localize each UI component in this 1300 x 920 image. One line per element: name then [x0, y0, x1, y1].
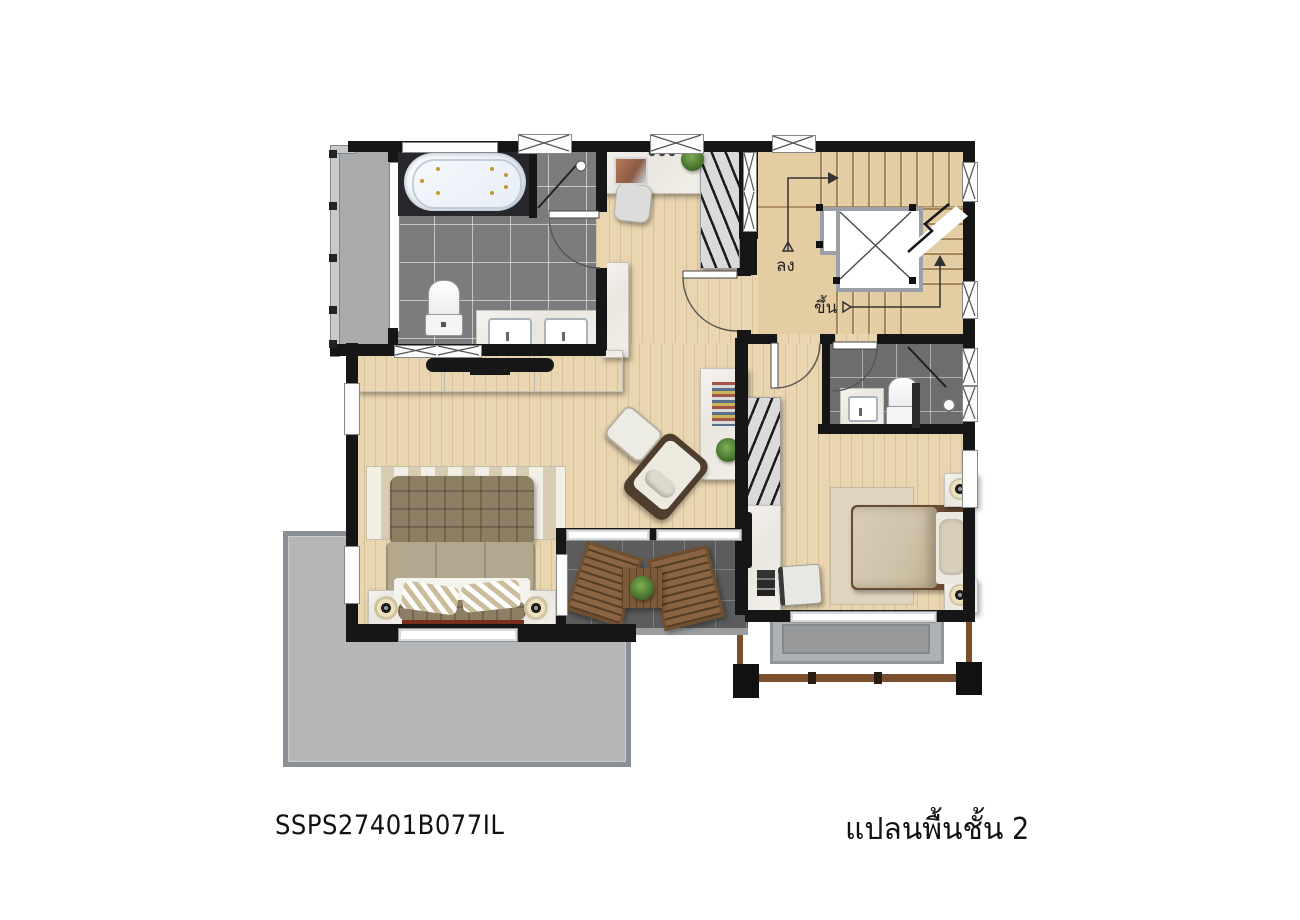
- plan-title: แปลนพื้นชั้น 2: [845, 806, 1029, 853]
- bed2-pillow: [939, 519, 965, 575]
- sliding-door: [790, 611, 937, 623]
- pergola-post-left: [733, 664, 759, 698]
- master-balcony-left: [330, 145, 398, 355]
- balcony-railing: [330, 145, 340, 357]
- wall-bath2-divider: [912, 383, 920, 428]
- stair-void-patch: [841, 212, 853, 242]
- window-x: [772, 135, 816, 153]
- wall-balcony-stub-bottom: [388, 328, 398, 346]
- window-x: [962, 281, 978, 319]
- wall-bath2-left: [822, 343, 830, 432]
- faucet: [859, 408, 862, 416]
- faucet: [506, 332, 509, 341]
- sliding-door: [566, 529, 650, 541]
- door-post: [737, 268, 751, 276]
- doorway-threshold: [596, 212, 607, 268]
- window-x: [962, 386, 978, 422]
- wall-mid-vertical: [735, 338, 748, 615]
- window: [962, 450, 978, 508]
- stair-flight-upper: [820, 148, 968, 207]
- stair-down-label: ลง: [776, 252, 795, 279]
- pergola-connector: [808, 672, 816, 684]
- doorway-threshold: [835, 334, 877, 344]
- bedroom2-chair: [778, 564, 823, 607]
- picture-frame: [614, 157, 648, 185]
- floor-plan: ลง ขึ้น SSPS27401B077IL แปลนพื้นชั้น 2: [0, 0, 1300, 920]
- bed2-duvet: [853, 507, 937, 588]
- window-x: [518, 134, 572, 154]
- window-x: [650, 134, 704, 154]
- window: [556, 554, 568, 616]
- master-bed-headboard-cushion: [390, 476, 534, 546]
- television-stand: [470, 371, 510, 375]
- wall-bath2-bottom: [818, 424, 968, 434]
- pergola-post-right: [956, 662, 982, 695]
- stair-flight-lower: [836, 284, 913, 340]
- window: [344, 383, 360, 435]
- bedroom2-balcony-inner: [782, 624, 930, 654]
- table-plant: [630, 576, 654, 600]
- table-lamp: [524, 596, 548, 620]
- bathtub-jets: [412, 159, 518, 205]
- doorway-threshold: [777, 334, 820, 344]
- table-lamp: [374, 596, 398, 620]
- wall-balcony-stub-top: [388, 150, 398, 162]
- desk-electronics: [757, 570, 775, 596]
- wall-shower-divider: [529, 148, 537, 218]
- window: [344, 546, 360, 604]
- shower-head-b2: [942, 398, 956, 412]
- sliding-door: [398, 628, 518, 642]
- stair-up-label: ขึ้น: [814, 294, 837, 321]
- sink: [848, 396, 878, 422]
- plan-code: SSPS27401B077IL: [275, 810, 504, 841]
- interior-window-x: [743, 152, 757, 232]
- desk-chair: [613, 182, 653, 224]
- toilet-flush-button: [441, 322, 446, 327]
- faucet: [562, 332, 565, 341]
- pergola-beam-bottom: [759, 674, 956, 682]
- window-x: [962, 162, 978, 202]
- window: [402, 142, 498, 153]
- transom-window-x: [394, 345, 482, 358]
- hall-wardrobe: [700, 149, 740, 269]
- television: [426, 358, 554, 372]
- window-x: [962, 348, 978, 386]
- pergola-connector: [874, 672, 882, 684]
- sliding-door: [656, 529, 742, 541]
